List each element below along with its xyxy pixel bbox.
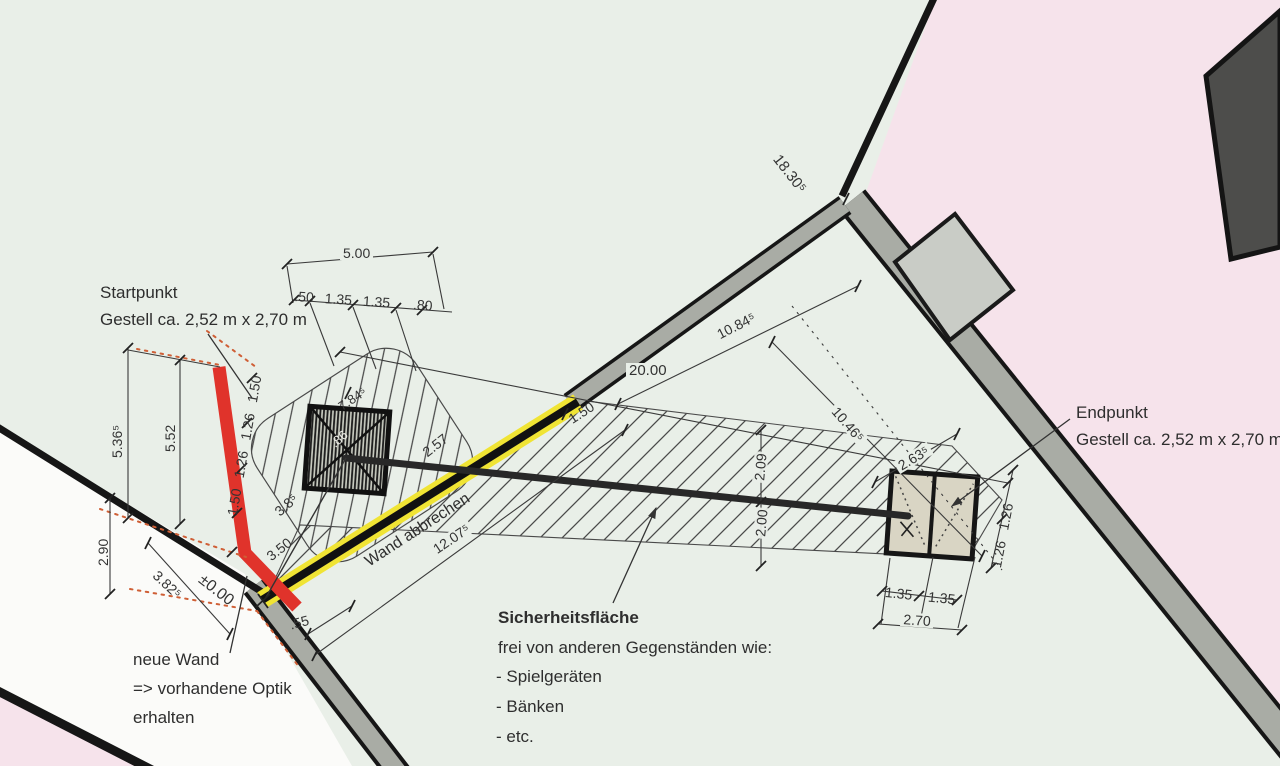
- endpunkt-subtitle: Gestell ca. 2,52 m x 2,70 m: [1076, 430, 1280, 450]
- dim-end-width: 2.70: [900, 612, 934, 628]
- startpunkt-title: Startpunkt: [100, 283, 178, 303]
- neue-wand-line2: => vorhandene Optik: [133, 679, 292, 699]
- sicherheitsflaeche-title: Sicherheitsfläche: [498, 608, 639, 628]
- dim-left-lower: 2.90: [96, 539, 110, 566]
- dim-top-chain-2: 1.35: [324, 290, 352, 308]
- neue-wand-line1: neue Wand: [133, 650, 219, 670]
- dim-span-total: 20.00: [626, 363, 670, 378]
- sicherheitsflaeche-item2: - Bänken: [496, 697, 564, 717]
- sicherheitsflaeche-item3: - etc.: [496, 727, 534, 747]
- startpunkt-subtitle: Gestell ca. 2,52 m x 2,70 m: [100, 310, 307, 330]
- dim-left-inner: 5.52: [163, 425, 177, 452]
- sicherheitsflaeche-item1: - Spielgeräten: [496, 667, 602, 687]
- dim-top-chain-4: .80: [413, 296, 434, 313]
- dim-top-chain-1: .50: [294, 288, 315, 305]
- endpunkt-title: Endpunkt: [1076, 403, 1148, 423]
- dim-left-outer: 5.36⁵: [110, 425, 124, 458]
- dim-band-lower-half: 2.00: [753, 507, 770, 539]
- neue-wand-line3: erhalten: [133, 708, 194, 728]
- dim-end-chain-bottom-2: 1.35: [927, 589, 956, 608]
- dim-end-chain-bottom-1: 1.35: [884, 584, 913, 603]
- dim-band-upper-half: 2.09: [752, 451, 769, 483]
- dim-top-width: 5.00: [340, 246, 373, 260]
- start-frame: [304, 406, 390, 493]
- sicherheitsflaeche-line1: frei von anderen Gegenständen wie:: [498, 638, 772, 658]
- dim-top-chain-3: 1.35: [362, 293, 390, 311]
- site-plan: Startpunkt Gestell ca. 2,52 m x 2,70 m E…: [0, 0, 1280, 766]
